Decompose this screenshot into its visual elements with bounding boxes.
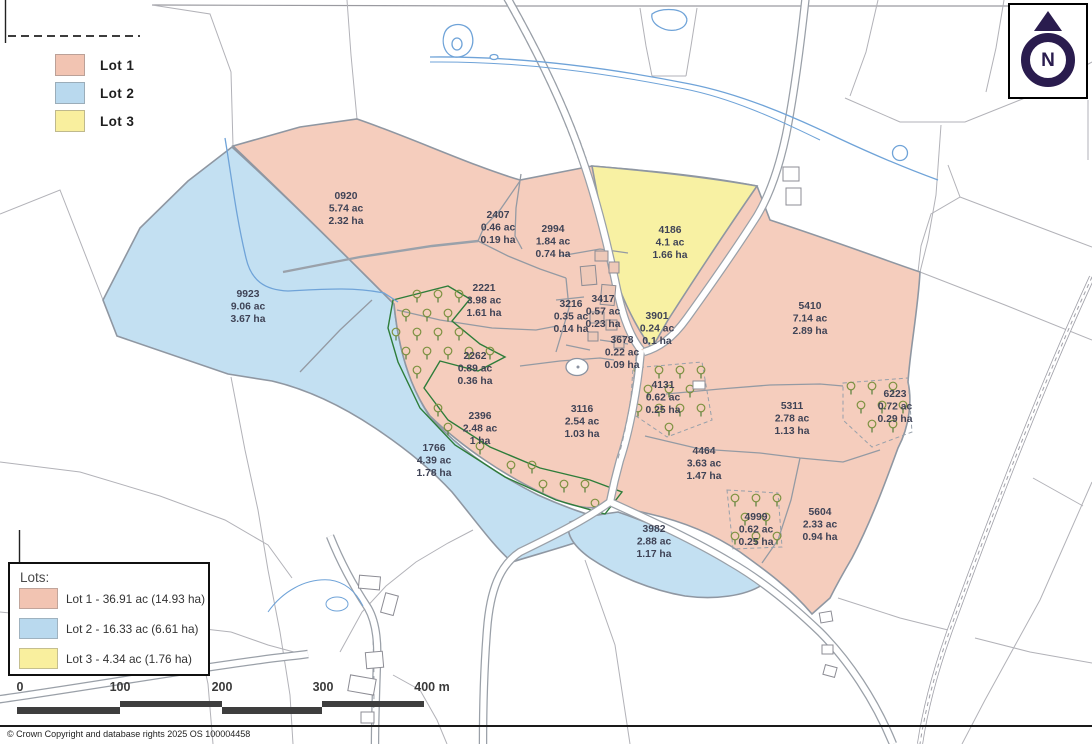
north-compass-icon: N (1021, 33, 1075, 87)
pond-double (443, 25, 473, 58)
lot-color-swatch (19, 648, 58, 669)
scale-bar: 0100200300400 m (0, 678, 470, 718)
legend-item-label: Lot 3 (100, 114, 134, 129)
lots-panel-item-label: Lot 2 - 16.33 ac (6.61 ha) (66, 622, 198, 636)
pond-small-round (893, 146, 908, 161)
legend-item-2: Lot 2 (55, 83, 134, 103)
scale-bar-segment (120, 701, 222, 708)
lot-color-swatch (55, 110, 85, 132)
building-ne-2 (786, 188, 801, 205)
lots-panel-item-label: Lot 1 - 36.91 ac (14.93 ha) (66, 592, 205, 606)
land-plan-map: 09205.74 ac2.32 ha24070.46 ac0.19 ha2994… (0, 0, 1092, 744)
legend-item-label: Lot 2 (100, 86, 134, 101)
legend-item-3: Lot 3 (55, 111, 134, 131)
north-arrow: N (1008, 3, 1088, 99)
north-letter: N (1041, 51, 1055, 70)
scale-tick-label: 300 (313, 680, 334, 694)
copyright-text: © Crown Copyright and database rights 20… (7, 729, 250, 739)
lot-color-swatch (55, 54, 85, 76)
building-ne-1 (783, 167, 799, 181)
pond-tiny (490, 55, 498, 60)
legend-item-label: Lot 1 (100, 58, 134, 73)
scale-bar-segment (222, 707, 322, 714)
lot-legend: Lot 1Lot 2Lot 3 (55, 55, 134, 139)
lots-panel-item-label: Lot 3 - 4.34 ac (1.76 ha) (66, 652, 192, 666)
scale-bar-segment (17, 707, 120, 714)
hamlet-building-2 (381, 593, 399, 616)
lots-summary-panel: Lots: Lot 1 - 36.91 ac (14.93 ha)Lot 2 -… (8, 562, 210, 676)
lots-panel-title: Lots: (20, 570, 208, 585)
hamlet-building-1 (358, 575, 380, 590)
pond-top (652, 10, 687, 31)
scale-tick-label: 0 (17, 680, 24, 694)
scale-tick-label: 100 (110, 680, 131, 694)
lots-panel-item-3: Lot 3 - 4.34 ac (1.76 ha) (19, 649, 208, 668)
lots-panel-item-1: Lot 1 - 36.91 ac (14.93 ha) (19, 589, 208, 608)
scale-tick-label: 400 m (414, 680, 449, 694)
legend-item-1: Lot 1 (55, 55, 134, 75)
scale-tick-label: 200 (212, 680, 233, 694)
lot-color-swatch (19, 618, 58, 639)
copyright-divider (0, 725, 1092, 727)
lot-color-swatch (19, 588, 58, 609)
north-arrow-triangle-icon (1034, 11, 1062, 31)
lot-color-swatch (55, 82, 85, 104)
hamlet-building-3 (365, 651, 383, 668)
pond-hamlet (326, 597, 348, 611)
scale-bar-segment (322, 701, 424, 708)
lots-panel-item-2: Lot 2 - 16.33 ac (6.61 ha) (19, 619, 208, 638)
stream-northeast (430, 57, 938, 180)
